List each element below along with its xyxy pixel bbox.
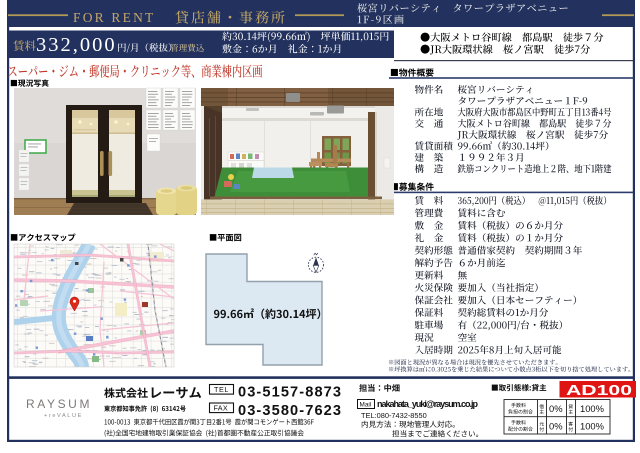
- svg-text:nakahata_yuki@raysum.co.jp: nakahata_yuki@raysum.co.jp: [377, 399, 479, 409]
- svg-text:TEL:080-7432-8550: TEL:080-7432-8550: [361, 411, 427, 420]
- svg-text:03-5157-8873: 03-5157-8873: [238, 385, 341, 401]
- svg-text:0%: 0%: [549, 403, 563, 414]
- svg-text:03-3580-7623: 03-3580-7623: [238, 403, 341, 419]
- svg-text:TEL: TEL: [214, 385, 229, 394]
- svg-text:100%: 100%: [580, 403, 604, 414]
- svg-text:332,000: 332,000: [36, 34, 117, 56]
- svg-text:100%: 100%: [580, 420, 604, 431]
- svg-text:0%: 0%: [549, 420, 563, 431]
- svg-text:+reVALUE: +reVALUE: [44, 413, 83, 419]
- svg-text:FAX: FAX: [214, 404, 228, 413]
- svg-text:FOR RENT: FOR RENT: [73, 10, 155, 25]
- svg-text:Mail: Mail: [360, 402, 372, 409]
- svg-text:AD100: AD100: [566, 383, 632, 399]
- svg-text:RAYSUM: RAYSUM: [26, 397, 92, 411]
